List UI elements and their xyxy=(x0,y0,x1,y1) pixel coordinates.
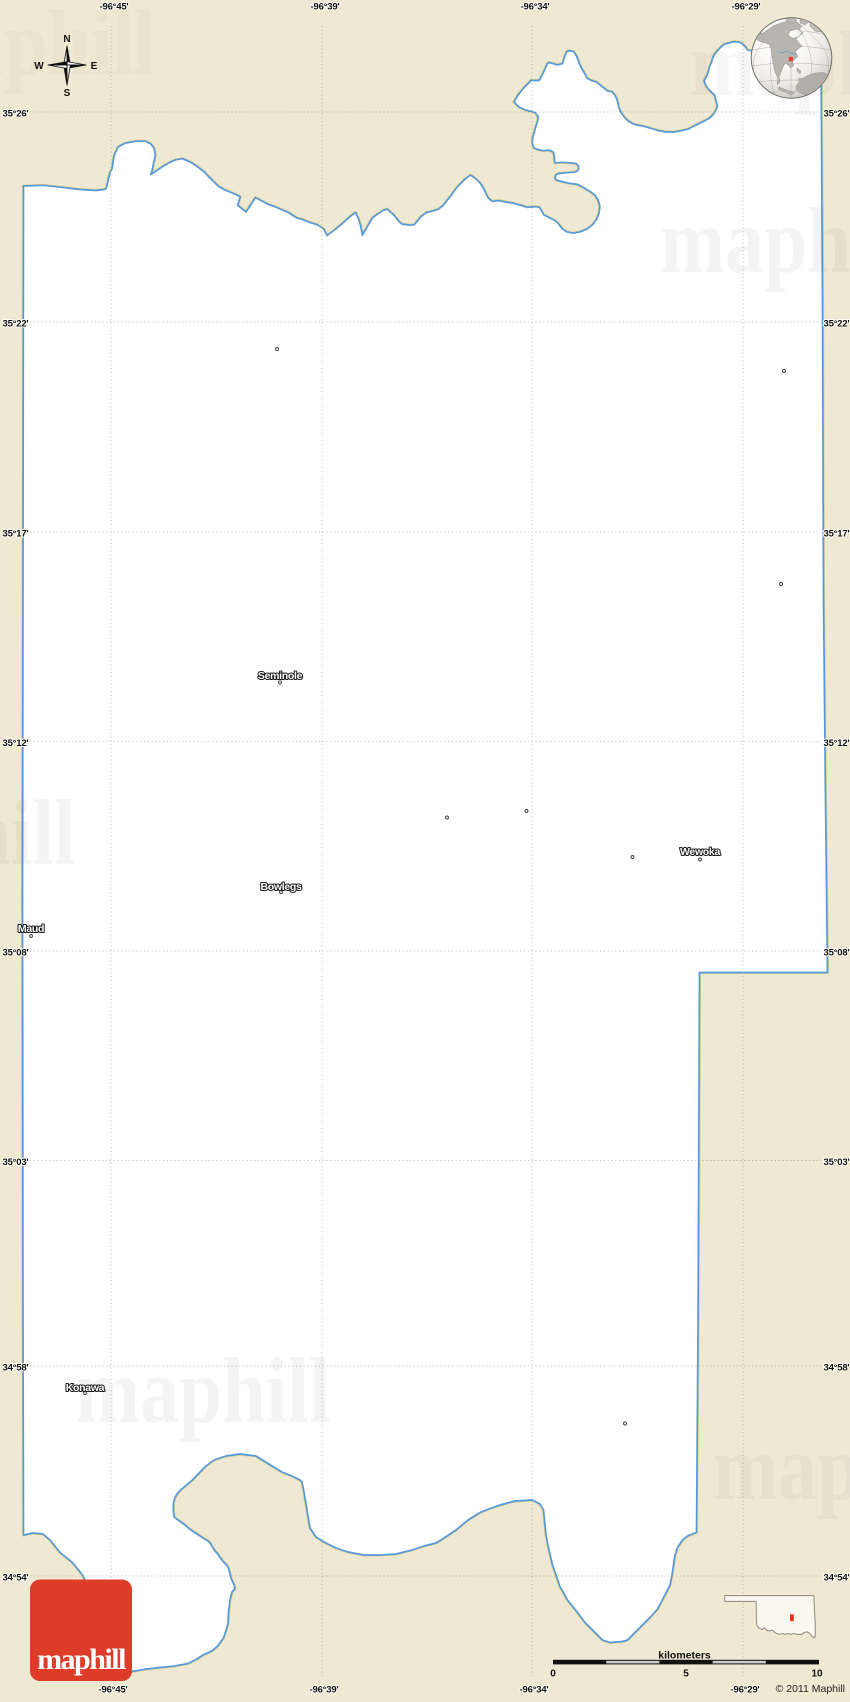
svg-text:Maud: Maud xyxy=(18,923,44,935)
svg-text:maphill: maphill xyxy=(0,780,76,884)
svg-text:35°17': 35°17' xyxy=(3,529,29,540)
svg-text:Bowlegs: Bowlegs xyxy=(260,881,302,893)
svg-text:35°26': 35°26' xyxy=(3,109,29,120)
svg-text:35°26': 35°26' xyxy=(824,109,850,120)
svg-text:-96°29': -96°29' xyxy=(731,1685,760,1696)
svg-text:35°12': 35°12' xyxy=(824,738,850,749)
svg-text:35°12': 35°12' xyxy=(3,738,29,749)
svg-text:10: 10 xyxy=(811,1669,823,1680)
svg-text:-96°45': -96°45' xyxy=(99,1685,128,1696)
svg-text:-96°34': -96°34' xyxy=(521,2,550,13)
svg-text:maphill: maphill xyxy=(75,1338,331,1442)
svg-text:35°08': 35°08' xyxy=(824,948,850,959)
svg-text:-96°29': -96°29' xyxy=(732,2,761,13)
svg-text:W: W xyxy=(34,61,44,72)
svg-text:maphill: maphill xyxy=(713,1415,850,1519)
svg-text:35°22': 35°22' xyxy=(3,319,29,330)
svg-text:-96°39': -96°39' xyxy=(311,2,340,13)
svg-text:35°08': 35°08' xyxy=(3,948,29,959)
svg-text:kilometers: kilometers xyxy=(658,1650,711,1662)
svg-text:N: N xyxy=(63,34,70,45)
svg-text:-96°39': -96°39' xyxy=(310,1685,339,1696)
svg-text:Konawa: Konawa xyxy=(66,1382,105,1394)
svg-text:Wewoka: Wewoka xyxy=(680,846,720,858)
svg-text:maphill: maphill xyxy=(0,0,156,95)
svg-text:34°54': 34°54' xyxy=(3,1573,29,1584)
svg-text:-96°34': -96°34' xyxy=(520,1685,549,1696)
svg-text:35°03': 35°03' xyxy=(824,1157,850,1168)
svg-text:35°22': 35°22' xyxy=(824,319,850,330)
svg-text:S: S xyxy=(64,88,71,99)
svg-text:maphill: maphill xyxy=(660,188,850,292)
svg-text:0: 0 xyxy=(550,1669,556,1680)
svg-text:maphill: maphill xyxy=(37,1643,126,1676)
svg-text:35°03': 35°03' xyxy=(3,1157,29,1168)
svg-text:35°17': 35°17' xyxy=(824,529,850,540)
svg-text:E: E xyxy=(91,61,98,72)
svg-text:-96°45': -96°45' xyxy=(100,2,129,13)
svg-text:5: 5 xyxy=(683,1669,689,1680)
svg-text:34°58': 34°58' xyxy=(3,1363,29,1374)
svg-text:34°58': 34°58' xyxy=(824,1363,850,1374)
svg-text:© 2011 Maphill: © 2011 Maphill xyxy=(776,1683,845,1695)
svg-text:34°54': 34°54' xyxy=(824,1573,850,1584)
svg-text:Seminole: Seminole xyxy=(258,670,303,682)
